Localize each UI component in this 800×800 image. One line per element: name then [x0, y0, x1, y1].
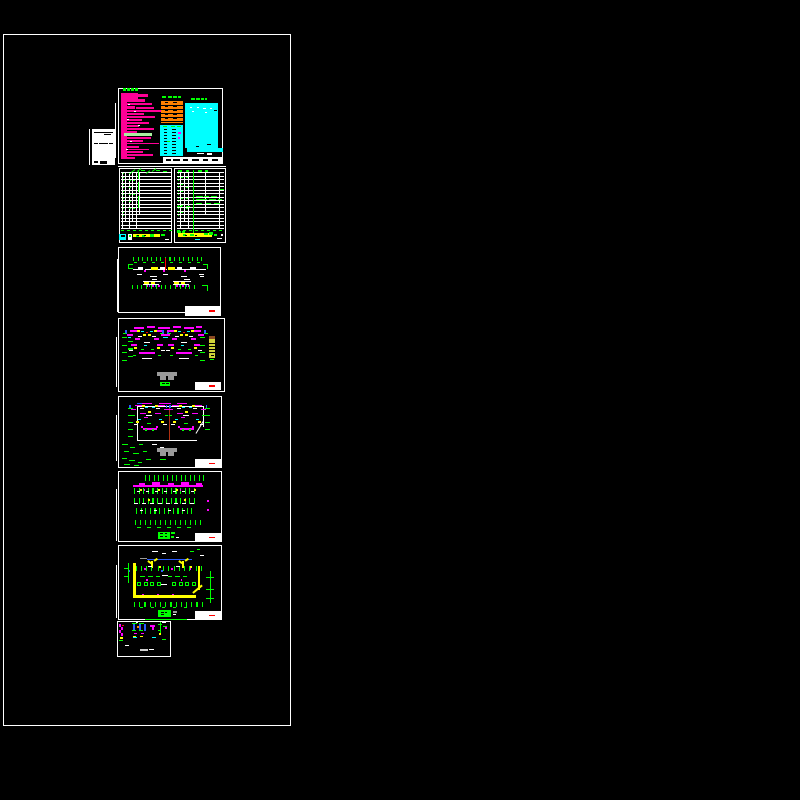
weak-current-plan-sheet-mark: [187, 508, 188, 514]
lighting-plan-sheet-mark: [158, 285, 160, 287]
power-plan-sheet-1-mark: [154, 338, 159, 340]
power-plan-sheet-1-mark: [188, 349, 191, 350]
power-plan-sheet-2-mark: [152, 429, 154, 430]
weak-current-plan-sheet-mark: [171, 498, 172, 504]
cover-design-notes-sheet-mark: [190, 107, 192, 108]
power-plan-sheet-1-mark: [152, 336, 156, 337]
cover-design-notes-sheet-mark: [136, 107, 154, 109]
weak-current-plan-sheet-mark: [145, 520, 146, 526]
power-plan-sheet-2-mark: [144, 417, 148, 419]
schedule-table-left-sheet-mark: [123, 177, 125, 178]
grounding-plan-sheet-mark: [157, 582, 161, 586]
cover-design-notes-sheet-mark: [197, 153, 204, 155]
weak-current-plan-sheet-mark: [165, 520, 166, 526]
schedule-table-right-sheet-mark: [196, 203, 202, 204]
grounding-plan-sheet-mark: [141, 566, 142, 571]
power-plan-sheet-1-mark: [209, 343, 215, 344]
grounding-plan-sheet-mark: [162, 607, 165, 608]
cover-design-notes-sheet-mark: [121, 151, 143, 153]
schedule-table-left-sheet-mark: [133, 194, 135, 195]
schedule-table-right-sheet-mark: [178, 215, 180, 216]
weak-current-plan-sheet-mark: [195, 520, 196, 526]
cover-design-notes-sheet-mark: [173, 96, 177, 98]
schedule-table-left-sheet-mark: [123, 215, 125, 216]
lighting-plan-sheet-mark: [175, 285, 176, 289]
schedule-table-left-sheet-mark: [129, 180, 131, 181]
detail-drawing-sheet-mark: [162, 639, 166, 640]
schedule-table-right-sheet-mark: [181, 177, 183, 178]
schedule-table-right-sheet-mark: [219, 230, 222, 231]
detail-drawing-sheet-mark: [132, 630, 136, 631]
power-plan-sheet-1-mark: [162, 383, 165, 384]
lighting-plan-sheet-mark: [194, 285, 195, 289]
cover-design-notes-sheet-mark: [121, 119, 142, 122]
weak-current-plan-sheet-mark: [184, 499, 186, 501]
schedule-table-right-sheet-mark: [181, 198, 183, 199]
cover-design-notes-sheet-mark: [171, 126, 175, 128]
lighting-plan-sheet-mark: [152, 262, 155, 263]
cover-design-notes-sheet-mark: [172, 138, 176, 139]
cover-design-notes-sheet-mark: [121, 157, 135, 159]
detail-drawing-sheet-mark: [140, 636, 143, 637]
power-plan-sheet-1-mark: [122, 352, 127, 353]
lighting-plan-sheet-mark: [189, 285, 190, 289]
schedule-table-left-sheet-mark: [138, 171, 139, 179]
power-plan-sheet-2-mark: [137, 440, 197, 441]
cover-design-notes-sheet-mark: [210, 108, 212, 109]
grounding-plan-sheet-mark: [144, 582, 148, 586]
power-plan-sheet-1-mark: [122, 337, 127, 338]
power-plan-sheet-1-mark: [158, 327, 170, 329]
weak-current-plan-sheet-mark: [176, 537, 179, 538]
cover-design-notes-sheet-mark: [121, 99, 145, 102]
weak-current-plan-sheet-mark: [175, 520, 176, 526]
lighting-plan-sheet-mark: [184, 270, 186, 272]
grounding-plan-sheet-mark: [172, 582, 176, 586]
weak-current-plan-sheet-mark: [173, 508, 174, 514]
schedule-table-left-sheet-mark: [129, 187, 131, 188]
lighting-plan-sheet-mark: [147, 257, 148, 262]
power-plan-sheet-2-mark: [205, 415, 210, 416]
power-plan-sheet-2-mark: [128, 436, 133, 437]
legend-note-box-mark: [94, 143, 98, 144]
schedule-table-right-sheet-mark: [177, 231, 181, 233]
power-plan-sheet-2-mark: [195, 459, 222, 467]
lighting-plan-sheet-mark: [180, 285, 181, 289]
power-plan-sheet-1-mark: [209, 346, 215, 347]
weak-current-plan-sheet-mark: [137, 527, 141, 528]
cover-design-notes-sheet-mark: [172, 147, 176, 148]
power-plan-sheet-2-mark: [168, 452, 174, 456]
grounding-plan-sheet-mark: [163, 566, 164, 571]
cover-design-notes-sheet-mark: [173, 110, 177, 111]
schedule-table-left-sheet-mark: [123, 173, 125, 174]
power-plan-sheet-1-mark: [166, 383, 169, 384]
schedule-table-right-sheet-mark: [178, 194, 180, 195]
cover-design-notes-sheet-mark: [192, 159, 199, 161]
schedule-table-right-sheet-mark: [204, 233, 208, 235]
cover-design-notes-sheet-mark: [128, 104, 130, 105]
schedule-table-left-sheet-mark: [123, 212, 125, 213]
legend-note-box-mark: [104, 134, 111, 135]
cover-design-notes-sheet-mark: [165, 102, 169, 103]
lighting-plan-sheet-mark: [156, 257, 157, 262]
lighting-plan-sheet-mark: [188, 262, 191, 263]
grounding-plan-sheet-mark: [200, 555, 204, 556]
power-plan-sheet-1-mark: [128, 337, 131, 338]
grounding-plan-sheet-mark: [161, 584, 167, 585]
schedule-table-right-sheet-mark: [206, 203, 211, 204]
power-plan-sheet-1-mark: [210, 359, 214, 360]
weak-current-plan-sheet-mark: [164, 491, 167, 492]
cover-design-notes-sheet-mark: [127, 119, 129, 120]
cover-design-notes-sheet-mark: [197, 107, 199, 108]
grounding-plan-sheet-mark: [206, 577, 214, 578]
power-plan-sheet-1-mark: [196, 326, 202, 328]
detail-drawing-sheet-mark: [136, 622, 138, 623]
grounding-plan-sheet-mark: [144, 568, 146, 570]
grounding-plan-sheet-mark: [202, 602, 203, 607]
power-plan-sheet-1-mark: [178, 331, 181, 332]
legend-note-box-mark: [89, 129, 90, 165]
power-plan-sheet-2-mark: [181, 417, 185, 419]
lighting-plan-sheet-mark: [185, 285, 186, 289]
cover-design-notes-sheet-mark: [172, 150, 176, 151]
power-plan-sheet-2-mark: [209, 463, 215, 465]
lighting-plan-sheet-mark: [197, 262, 200, 263]
power-plan-sheet-1-mark: [147, 326, 155, 328]
power-plan-sheet-1-mark: [142, 358, 152, 359]
cover-design-notes-sheet-mark: [138, 94, 148, 97]
cover-design-notes-sheet-mark: [121, 113, 144, 116]
detail-drawing-sheet-mark: [149, 649, 154, 650]
power-plan-sheet-1-mark: [116, 337, 117, 387]
weak-current-plan-sheet-mark: [191, 508, 192, 514]
weak-current-plan-sheet-mark: [158, 503, 162, 504]
lighting-plan-sheet-mark: [168, 267, 175, 270]
schedule-table-left-sheet-mark: [133, 230, 136, 231]
cover-design-notes-sheet-mark: [196, 146, 199, 147]
weak-current-plan-sheet-mark: [136, 508, 137, 514]
cover-design-notes-sheet-mark: [205, 98, 207, 100]
detail-drawing-sheet-mark: [144, 624, 146, 631]
grounding-plan-sheet-mark: [150, 582, 154, 586]
power-plan-sheet-2-mark: [122, 444, 128, 445]
power-plan-sheet-1-mark: [198, 350, 202, 351]
schedule-table-right-sheet-mark: [186, 177, 188, 178]
weak-current-plan-sheet-mark: [209, 537, 215, 539]
legend-note-box-mark: [109, 143, 113, 144]
schedule-table-right-sheet-mark: [178, 184, 180, 185]
schedule-table-right-sheet-mark: [178, 177, 180, 178]
cover-design-notes-sheet-mark: [207, 144, 211, 145]
grounding-plan-sheet-mark: [176, 566, 180, 567]
weak-current-plan-sheet-mark: [163, 475, 164, 481]
weak-current-plan-sheet-mark: [185, 475, 186, 481]
schedule-table-left-sheet-mark: [123, 198, 125, 199]
weak-current-plan-sheet-mark: [134, 503, 138, 504]
weak-current-plan-sheet-mark: [116, 489, 117, 541]
lighting-plan-sheet-mark: [161, 285, 162, 289]
power-plan-sheet-2-mark: [124, 451, 129, 452]
cover-design-notes-sheet-mark: [126, 149, 128, 150]
weak-current-plan-sheet-mark: [180, 520, 181, 526]
power-plan-sheet-1-mark: [183, 332, 185, 334]
weak-current-plan-sheet-mark: [135, 520, 136, 526]
cover-design-notes-sheet-mark: [205, 112, 207, 113]
cover-design-notes-sheet-mark: [164, 138, 167, 139]
legend-note-box-mark: [94, 161, 98, 163]
cover-design-notes-sheet-mark: [173, 121, 177, 122]
lighting-plan-sheet-mark: [170, 262, 173, 263]
schedule-table-right-sheet-mark: [201, 230, 204, 231]
lighting-plan-sheet-mark: [182, 285, 184, 287]
power-plan-sheet-2-mark: [200, 424, 204, 425]
detail-drawing-sheet-mark: [152, 637, 156, 638]
schedule-table-right-sheet-mark: [182, 231, 185, 233]
power-plan-sheet-1-mark: [139, 352, 155, 354]
power-plan-sheet-2-mark: [146, 415, 152, 416]
power-plan-sheet-2-mark: [152, 407, 155, 408]
schedule-table-right-sheet-mark: [188, 172, 189, 228]
power-plan-sheet-1-mark: [200, 360, 205, 361]
cover-design-notes-sheet-mark: [167, 141, 170, 142]
weak-current-plan-sheet-mark: [182, 510, 185, 511]
schedule-table-right-sheet-mark: [180, 172, 181, 228]
power-plan-sheet-2-mark: [192, 405, 195, 407]
detail-drawing-sheet-mark: [141, 633, 144, 635]
power-plan-sheet-1-mark: [150, 331, 153, 332]
schedule-table-right-sheet-mark: [189, 230, 192, 231]
lighting-plan-sheet-mark: [179, 257, 180, 262]
grounding-plan-sheet-mark: [152, 551, 158, 552]
weak-current-plan-sheet-mark: [160, 520, 161, 526]
power-plan-sheet-2-mark: [116, 415, 117, 461]
power-plan-sheet-1-mark: [179, 358, 189, 359]
schedule-table-left-sheet-mark: [123, 208, 125, 209]
cover-design-notes-sheet-mark: [131, 88, 134, 91]
schedule-table-left-sheet-mark: [123, 194, 125, 195]
cover-design-notes-sheet-mark: [173, 159, 180, 161]
cover-design-notes-sheet-mark: [163, 126, 167, 128]
weak-current-plan-sheet-mark: [145, 475, 146, 481]
schedule-table-right-sheet-mark: [195, 230, 198, 231]
cover-design-notes-sheet-mark: [172, 132, 176, 133]
schedule-table-left-sheet-mark: [121, 235, 125, 237]
power-plan-sheet-2-mark: [160, 459, 166, 460]
weak-current-plan-sheet-mark: [152, 488, 153, 494]
grounding-plan-sheet-mark: [176, 602, 177, 607]
power-plan-sheet-1-mark: [137, 330, 140, 332]
power-plan-sheet-2-mark: [189, 407, 192, 408]
grounding-plan-sheet-mark: [191, 602, 192, 607]
weak-current-plan-sheet-mark: [150, 503, 154, 504]
power-plan-sheet-2-mark: [136, 421, 139, 423]
power-plan-sheet-2-mark: [141, 426, 143, 429]
power-plan-sheet-2-mark: [134, 465, 139, 466]
power-plan-sheet-1-mark: [135, 338, 140, 340]
weak-current-plan-sheet-mark: [167, 475, 168, 481]
power-plan-sheet-1-mark: [200, 337, 205, 338]
power-plan-sheet-2-mark: [145, 407, 148, 408]
grounding-plan-sheet-mark: [156, 576, 160, 577]
grounding-plan-sheet-mark: [139, 602, 140, 607]
lighting-plan-sheet-mark: [163, 274, 168, 275]
cover-design-notes-sheet-mark: [172, 153, 176, 154]
cover-design-notes-sheet-mark: [203, 159, 208, 161]
grounding-plan-sheet-mark: [162, 553, 166, 554]
schedule-table-left-sheet-mark: [123, 184, 125, 185]
schedule-table-left-sheet-mark: [139, 172, 140, 214]
weak-current-plan-sheet-mark: [174, 503, 178, 504]
grounding-plan-sheet-mark: [195, 611, 221, 619]
power-plan-sheet-2-mark: [185, 411, 188, 413]
power-plan-sheet-1-mark: [209, 349, 215, 350]
detail-drawing-sheet-mark: [162, 622, 166, 623]
grounding-plan-sheet-mark: [173, 614, 176, 615]
cover-design-notes-sheet-mark: [173, 106, 177, 107]
schedule-table-left-sheet-mark: [127, 230, 130, 231]
cover-design-notes-sheet-mark: [121, 103, 152, 105]
weak-current-plan-sheet-mark: [145, 508, 146, 514]
cover-design-notes-sheet-mark: [124, 133, 152, 136]
cover-design-notes-sheet-mark: [178, 96, 181, 98]
weak-current-plan-sheet-mark: [194, 489, 196, 491]
weak-current-plan-sheet-mark: [171, 488, 172, 494]
lighting-plan-sheet-mark: [160, 257, 161, 262]
power-plan-sheet-2-mark: [178, 426, 180, 429]
grounding-plan-sheet-mark: [155, 602, 156, 607]
power-plan-sheet-1-mark: [134, 347, 137, 349]
power-plan-sheet-2-mark: [182, 429, 184, 430]
power-plan-sheet-1-mark: [194, 347, 197, 349]
power-plan-sheet-1-mark: [170, 355, 173, 356]
weak-current-plan-sheet-mark: [146, 491, 149, 492]
detail-drawing-sheet-mark: [125, 645, 129, 646]
schedule-table-left-sheet-mark: [123, 205, 125, 206]
detail-drawing-sheet-mark: [137, 626, 139, 628]
power-plan-sheet-2-mark: [173, 421, 176, 423]
weak-current-plan-sheet-mark: [200, 520, 201, 526]
schedule-table-left-sheet-mark: [133, 208, 135, 209]
schedule-table-right-sheet-mark: [193, 170, 194, 233]
power-plan-sheet-1-mark: [160, 333, 163, 334]
cover-design-notes-sheet-mark: [165, 114, 169, 115]
cover-design-notes-sheet-mark: [115, 103, 116, 158]
power-plan-sheet-2-mark: [171, 424, 175, 425]
power-plan-sheet-1-mark: [200, 352, 205, 353]
schedule-table-right-sheet-mark: [178, 187, 180, 188]
lighting-plan-sheet-mark: [117, 259, 118, 312]
schedule-table-right-sheet-mark: [186, 187, 188, 188]
weak-current-plan-sheet-mark: [139, 483, 145, 486]
schedule-table-right-sheet-mark: [181, 184, 183, 185]
detail-drawing-sheet-mark: [121, 627, 123, 630]
grounding-plan-sheet-mark: [173, 607, 176, 608]
cover-design-notes-sheet-mark: [166, 159, 171, 161]
power-plan-sheet-2-mark: [189, 429, 191, 430]
lighting-plan-sheet-mark: [143, 262, 146, 263]
schedule-table-right-sheet-mark: [195, 239, 200, 240]
schedule-table-right-sheet-mark: [209, 199, 216, 200]
weak-current-plan-sheet-mark: [203, 475, 204, 481]
cover-design-notes-sheet-mark: [135, 88, 138, 91]
schedule-table-right-sheet-mark: [178, 173, 180, 174]
cover-design-notes-sheet-mark: [164, 144, 167, 145]
power-plan-sheet-2-mark: [179, 405, 182, 407]
cover-design-notes-sheet-mark: [203, 108, 206, 109]
lighting-plan-sheet-mark: [207, 285, 208, 291]
power-plan-sheet-1-mark: [123, 333, 126, 334]
grounding-plan-sheet-mark: [165, 602, 166, 607]
power-plan-sheet-2-mark: [129, 460, 135, 461]
cover-design-notes-sheet-mark: [134, 111, 136, 112]
weak-current-plan-sheet-mark: [140, 489, 142, 491]
power-plan-sheet-1-mark: [174, 330, 177, 332]
power-plan-sheet-1-mark: [180, 334, 183, 336]
lighting-plan-sheet-mark: [169, 257, 170, 262]
cover-design-notes-sheet-mark: [172, 144, 176, 145]
grounding-plan-sheet-mark: [133, 595, 196, 597]
schedule-table-left-sheet-mark: [136, 172, 137, 228]
weak-current-plan-sheet-mark: [176, 475, 177, 481]
lighting-plan-sheet-mark: [174, 257, 175, 262]
power-plan-sheet-2-mark: [156, 426, 158, 429]
lighting-plan-sheet-mark: [144, 270, 146, 272]
schedule-table-right-sheet-mark: [178, 198, 180, 199]
power-plan-sheet-2-mark: [192, 426, 194, 429]
power-plan-sheet-2-mark: [205, 422, 210, 423]
power-plan-sheet-2-mark: [158, 405, 165, 407]
power-plan-sheet-2-mark: [128, 415, 133, 416]
grounding-plan-sheet-mark: [136, 566, 137, 571]
cover-design-notes-sheet-mark: [121, 154, 153, 156]
grounding-plan-sheet-mark: [184, 566, 185, 571]
cad-model-space[interactable]: [0, 0, 800, 800]
detail-drawing-sheet-mark: [121, 633, 123, 636]
weak-current-plan-sheet-mark: [190, 520, 191, 526]
cover-design-notes-sheet-mark: [214, 110, 218, 111]
cover-design-notes-sheet-mark: [172, 129, 176, 130]
weak-current-plan-sheet-mark: [155, 520, 156, 526]
cover-design-notes-sheet-mark: [138, 125, 140, 126]
grounding-plan-sheet-mark: [124, 576, 128, 577]
weak-current-plan-sheet-mark: [185, 520, 186, 526]
lighting-plan-sheet-mark: [170, 285, 171, 289]
grounding-plan-sheet-mark: [151, 607, 154, 608]
power-plan-sheet-1-mark: [168, 376, 174, 380]
cover-design-notes-sheet-mark: [130, 141, 132, 142]
grounding-plan-sheet-mark: [198, 566, 200, 590]
grounding-plan-sheet-mark: [175, 576, 180, 577]
lighting-plan-sheet-mark: [183, 257, 184, 262]
schedule-table-right-sheet-mark: [217, 238, 222, 239]
lighting-plan-sheet-mark: [192, 257, 193, 262]
power-plan-sheet-1-mark: [166, 350, 170, 351]
cover-design-notes-sheet-mark: [164, 135, 167, 136]
power-plan-sheet-2-mark: [146, 459, 151, 460]
cover-design-notes-sheet-mark: [191, 98, 195, 100]
power-plan-sheet-2-mark: [124, 464, 130, 465]
grounding-plan-sheet-mark: [183, 576, 187, 577]
schedule-table-right-sheet-mark: [196, 199, 207, 200]
lighting-plan-sheet-mark: [176, 285, 178, 287]
schedule-table-right-sheet-mark: [214, 203, 220, 204]
power-plan-sheet-1-mark: [191, 338, 196, 340]
weak-current-plan-sheet-mark: [134, 488, 135, 494]
grounding-plan-sheet-mark: [172, 594, 174, 595]
weak-current-plan-sheet-mark: [170, 520, 171, 526]
